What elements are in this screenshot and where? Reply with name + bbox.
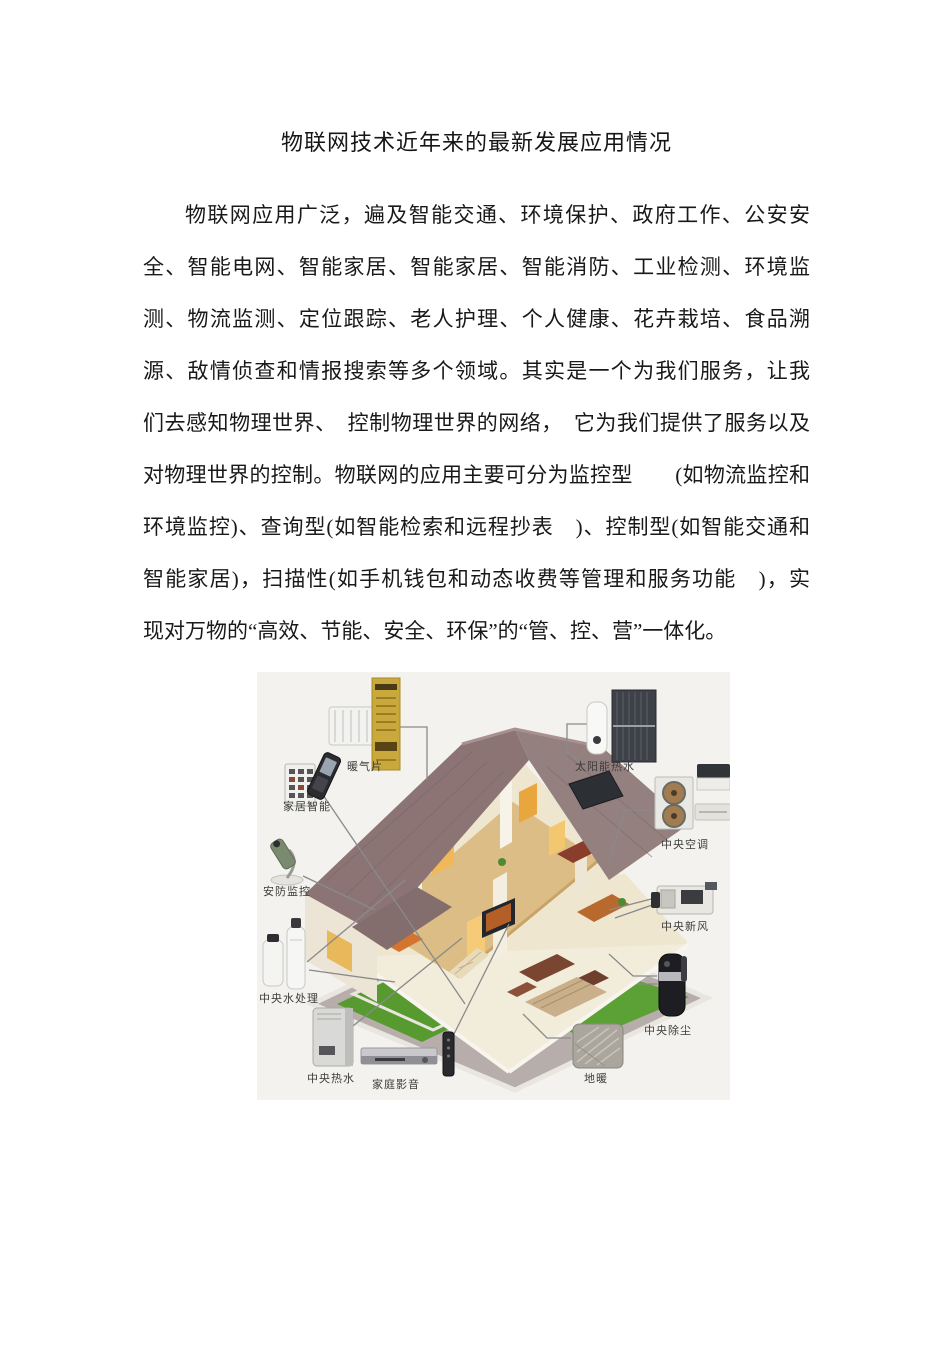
paragraph-line: 环境监控)、查询型(如智能检索和远程抄表 )、控制型(如智能交通和 xyxy=(143,501,810,553)
label-home-av: 家庭影音 xyxy=(372,1076,420,1092)
body-paragraph: 物联网应用广泛，遍及智能交通、环境保护、政府工作、公安安 全、智能电网、智能家居… xyxy=(143,189,810,657)
paragraph-line: 物联网应用广泛，遍及智能交通、环境保护、政府工作、公安安 xyxy=(143,189,810,241)
label-radiator: 暖气片 xyxy=(347,758,383,774)
document-title: 物联网技术近年来的最新发展应用情况 xyxy=(143,126,810,160)
central-vacuum-icon xyxy=(659,954,687,1016)
security-camera-icon xyxy=(269,837,303,885)
radiator-icon xyxy=(329,678,400,770)
label-central-vacuum: 中央除尘 xyxy=(644,1022,692,1038)
label-floor-heating: 地暖 xyxy=(584,1070,608,1086)
paragraph-line: 智能家居)，扫描性(如手机钱包和动态收费等管理和服务功能 )，实 xyxy=(143,553,810,605)
paragraph-line: 测、物流监测、定位跟踪、老人护理、个人健康、花卉栽培、食品溯 xyxy=(143,293,810,345)
paragraph-line: 们去感知物理世界、 控制物理世界的网络， 它为我们提供了服务以及 xyxy=(143,397,810,449)
paragraph-line: 全、智能电网、智能家居、智能家居、智能消防、工业检测、环境监 xyxy=(143,241,810,293)
label-solar-water-heater: 太阳能热水 xyxy=(575,758,635,774)
paragraph-line: 源、敌情侦查和情报搜索等多个领域。其实是一个为我们服务，让我 xyxy=(143,345,810,397)
floor-heating-icon xyxy=(573,1024,623,1068)
hot-water-icon xyxy=(313,1008,353,1066)
smart-home-figure: 暖气片 太阳能热水 家居智能 中央空调 安防监控 中央新风 中央水处理 中央除尘… xyxy=(257,672,730,1100)
water-treatment-icon xyxy=(263,918,305,989)
paragraph-line: 现对万物的“高效、节能、安全、环保”的“管、控、营”一体化。 xyxy=(143,605,810,657)
label-fresh-air: 中央新风 xyxy=(661,918,709,934)
label-central-ac: 中央空调 xyxy=(661,836,709,852)
central-ac-icon xyxy=(655,764,730,829)
label-security-camera: 安防监控 xyxy=(263,883,311,899)
fresh-air-icon xyxy=(651,882,717,914)
label-water-treatment: 中央水处理 xyxy=(259,990,319,1006)
document-page: 物联网技术近年来的最新发展应用情况 物联网应用广泛，遍及智能交通、环境保护、政府… xyxy=(0,0,950,1345)
solar-water-heater-icon xyxy=(587,690,656,762)
paragraph-line: 对物理世界的控制。物联网的应用主要可分为监控型 (如物流监控和 xyxy=(143,449,810,501)
label-home-automation: 家居智能 xyxy=(283,798,331,814)
label-hot-water: 中央热水 xyxy=(307,1070,355,1086)
